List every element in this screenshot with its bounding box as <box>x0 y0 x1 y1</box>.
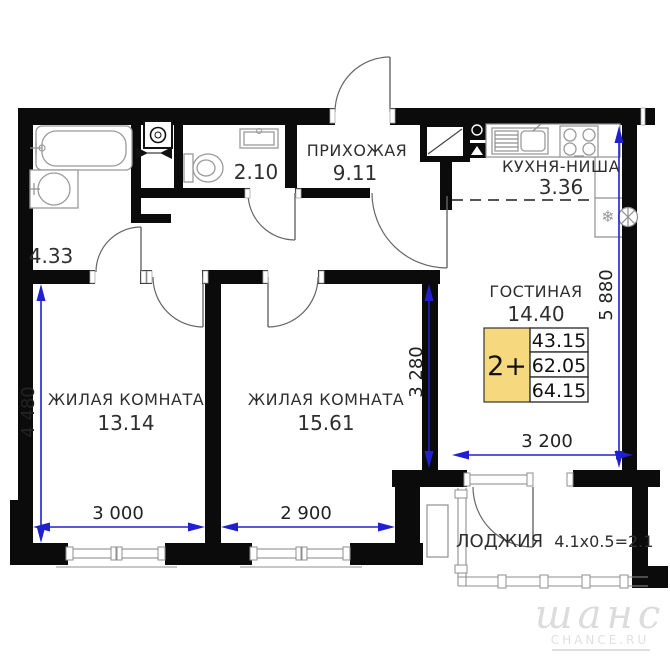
floor-plan: ❄ <box>0 0 670 670</box>
area-value-3: 64.15 <box>532 380 586 402</box>
bedroom1-window <box>56 547 177 567</box>
watermark: шанс CHANCE.RU <box>535 592 666 650</box>
room-label-hallway: ПРИХОЖАЯ <box>307 141 408 160</box>
room-label-loggia: ЛОДЖИЯ 4.1x0.5=2.1 <box>456 531 653 552</box>
room-area-bathroom: 4.33 <box>29 244 74 268</box>
room-area-bedroom2: 15.61 <box>297 411 354 435</box>
bathroom-sink <box>30 170 78 208</box>
dimension-5880: 5 880 <box>596 126 624 468</box>
dimension-2900: 2 900 <box>221 503 395 532</box>
dimension-3200: 3 200 <box>452 431 633 460</box>
apartment-type: 2+ <box>487 351 527 382</box>
bedroom2-door-arc <box>268 277 318 327</box>
bathroom-door-arc <box>96 227 141 272</box>
area-value-2: 62.05 <box>532 355 586 377</box>
dimension-3280: 3 280 <box>406 284 434 468</box>
bedroom1-door-arc <box>153 277 203 327</box>
interior-walls <box>18 125 452 543</box>
living-window <box>464 473 573 486</box>
room-area-living: 14.40 <box>507 302 564 326</box>
watermark-script: шанс <box>535 592 666 638</box>
room-area-wc: 2.10 <box>234 160 279 184</box>
dimension-3000: 3 000 <box>33 503 205 532</box>
apartment-info-box: 2+ 43.15 62.05 64.15 <box>484 328 588 402</box>
dim-label-3280: 3 280 <box>406 346 427 398</box>
loggia-name: ЛОДЖИЯ <box>456 531 543 552</box>
floor-plan-canvas: ❄ <box>0 0 670 670</box>
dim-label-4480: 4 480 <box>18 386 39 438</box>
dim-label-5880: 5 880 <box>596 269 617 321</box>
room-area-hallway: 9.11 <box>333 161 378 185</box>
toilet <box>184 154 223 182</box>
room-area-kitchen: 3.36 <box>539 175 584 199</box>
room-label-kitchen: КУХНЯ-НИША <box>502 157 620 176</box>
water-heater-icon <box>468 121 486 158</box>
room-label-bedroom1: ЖИЛАЯ КОМНАТА <box>48 390 204 409</box>
entry-door-arc <box>335 57 390 112</box>
dim-label-3000: 3 000 <box>92 503 144 524</box>
vent-icon <box>619 207 638 227</box>
area-value-1: 43.15 <box>532 330 586 352</box>
stove <box>560 126 598 157</box>
wc-sink <box>240 129 278 149</box>
entry-closet <box>420 121 470 162</box>
bathtub <box>30 126 132 170</box>
room-area-bedroom1: 13.14 <box>97 411 154 435</box>
dim-label-3200: 3 200 <box>521 431 573 452</box>
room-label-living: ГОСТИНАЯ <box>489 282 582 301</box>
wc-door-arc <box>248 193 295 240</box>
room-label-bedroom2: ЖИЛАЯ КОМНАТА <box>248 390 404 409</box>
loggia-calc: 4.1x0.5=2.1 <box>554 532 653 551</box>
fridge-snowflake-icon: ❄ <box>601 207 614 226</box>
hall-living-door-arc <box>372 193 447 268</box>
loggia-cabinet <box>427 505 448 557</box>
dim-label-2900: 2 900 <box>280 503 332 524</box>
kitchen-sink <box>492 124 548 154</box>
washing-machine-icon <box>144 121 172 148</box>
watermark-domain: CHANCE.RU <box>551 633 649 647</box>
bedroom2-window <box>240 547 362 567</box>
